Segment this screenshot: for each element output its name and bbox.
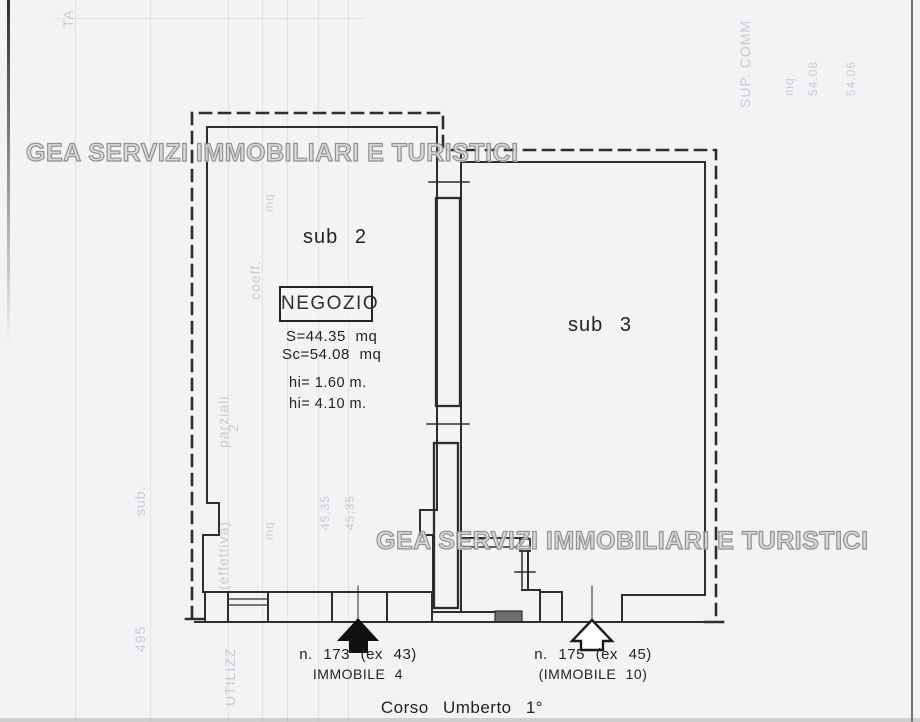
negozio-room-tag: NEGOZIO	[279, 286, 373, 322]
left-entrance-number-label: n. 173 (ex 43)	[278, 646, 438, 663]
threshold-step	[495, 611, 522, 622]
right-entrance-name-label: (IMMOBILE 10)	[513, 666, 673, 682]
sub3-room-label: sub 3	[555, 314, 645, 337]
negozio-height-1-label: hi= 1.60 m.	[289, 375, 367, 391]
scan-edge-bottom	[0, 718, 920, 722]
window-lines	[228, 599, 268, 605]
scan-edge-left	[7, 0, 10, 345]
left-entrance-name-label: IMMOBILE 4	[278, 666, 438, 682]
street-name-label: Corso Umberto 1°	[327, 698, 597, 718]
watermark-top: GEA SERVIZI IMMOBILIARI E TURISTICI	[26, 139, 519, 168]
floor-plan-drawing	[0, 0, 920, 722]
right-entrance-number-label: n. 175 (ex 45)	[513, 646, 673, 663]
watermark-middle: GEA SERVIZI IMMOBILIARI E TURISTICI	[376, 527, 869, 556]
scanned-floor-plan-page: { "watermarks": { "top": "GEA SERVIZI IM…	[0, 0, 920, 722]
negozio-covered-surface-label: Sc=54.08 mq	[282, 346, 381, 363]
negozio-height-2-label: hi= 4.10 m.	[289, 396, 367, 412]
scan-edge-right	[911, 0, 913, 722]
sub2-room-label: sub 2	[290, 226, 380, 249]
negozio-surface-label: S=44.35 mq	[286, 328, 377, 345]
